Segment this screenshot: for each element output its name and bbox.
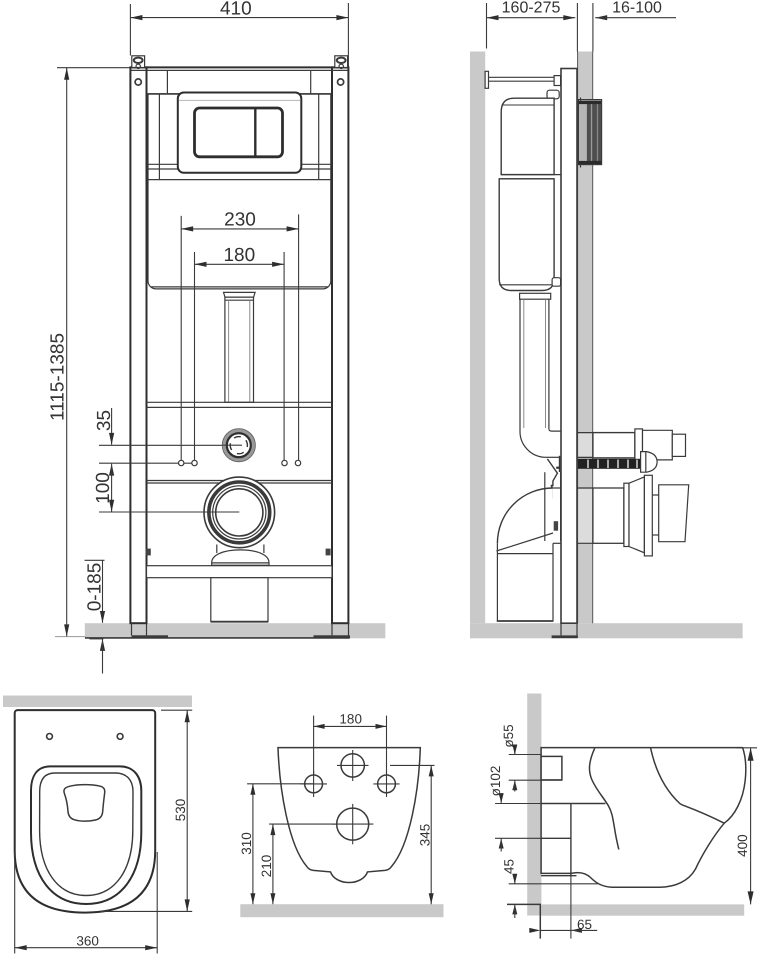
svg-text:ø102: ø102	[488, 766, 503, 797]
svg-text:230: 230	[224, 210, 256, 231]
svg-text:530: 530	[173, 799, 188, 822]
svg-text:180: 180	[339, 711, 362, 726]
svg-text:210: 210	[259, 855, 274, 878]
svg-text:1115-1385: 1115-1385	[48, 333, 69, 421]
svg-text:35: 35	[94, 410, 115, 431]
svg-text:400: 400	[735, 834, 750, 857]
svg-text:16-100: 16-100	[612, 0, 662, 16]
svg-text:65: 65	[577, 917, 592, 932]
svg-text:360: 360	[76, 934, 99, 949]
svg-text:345: 345	[418, 824, 433, 847]
svg-text:100: 100	[93, 472, 114, 504]
svg-text:0-185: 0-185	[85, 563, 106, 612]
svg-text:45: 45	[502, 859, 517, 874]
svg-text:310: 310	[239, 832, 254, 855]
svg-text:ø55: ø55	[501, 724, 516, 747]
svg-text:160-275: 160-275	[502, 0, 561, 16]
svg-text:180: 180	[223, 245, 255, 266]
svg-text:410: 410	[220, 0, 252, 19]
